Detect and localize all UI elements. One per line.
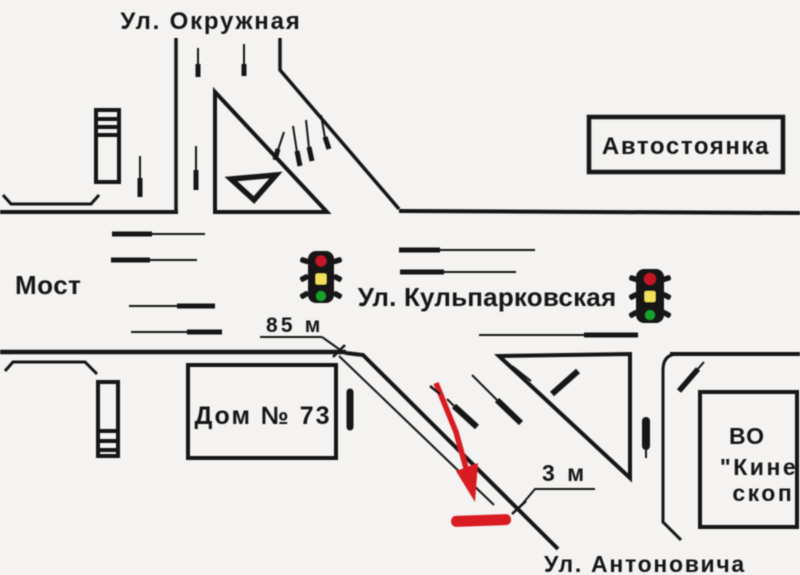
svg-text:скоп": скоп" [732,480,800,506]
svg-text:Ул. Антоновича: Ул. Антоновича [544,551,746,575]
svg-text:Ул. Окружная: Ул. Окружная [120,8,301,35]
svg-text:Дом № 73: Дом № 73 [194,402,331,430]
svg-text:Автостоянка: Автостоянка [602,133,770,160]
svg-text:Ул. Кульпарковская: Ул. Кульпарковская [358,282,617,312]
svg-text:3 м: 3 м [542,460,587,486]
svg-text:Мост: Мост [15,270,81,300]
svg-text:ВО: ВО [729,423,765,449]
svg-text:85 м: 85 м [266,314,324,337]
svg-text:"Кине: "Кине [720,454,798,480]
